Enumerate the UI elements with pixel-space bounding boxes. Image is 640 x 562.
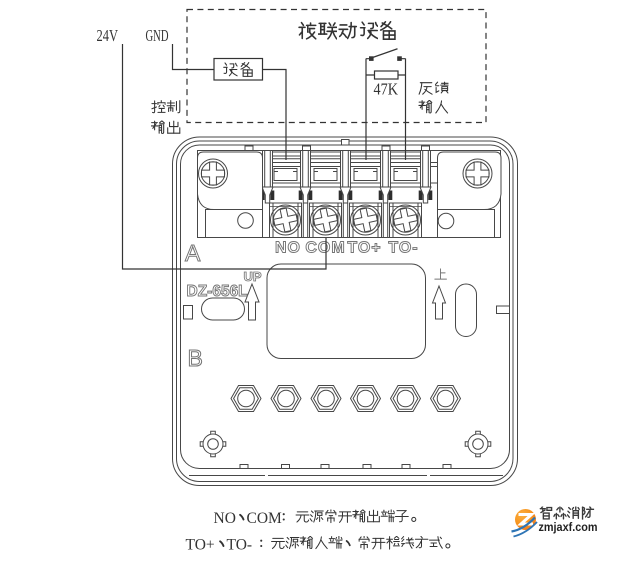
svg-text:B: B <box>188 345 203 371</box>
svg-text:A: A <box>185 240 201 266</box>
svg-text:COM: COM <box>247 510 283 527</box>
svg-text:NO: NO <box>214 510 236 527</box>
svg-text:TO-: TO- <box>227 537 253 554</box>
svg-text:TO+: TO+ <box>347 240 381 257</box>
svg-text:TO-: TO- <box>388 240 418 257</box>
svg-text:TO+: TO+ <box>186 537 215 554</box>
svg-text:24V: 24V <box>97 26 119 45</box>
svg-text:DZ-656L: DZ-656L <box>187 283 248 300</box>
svg-text:47K: 47K <box>374 80 399 99</box>
svg-text:GND: GND <box>146 26 169 45</box>
svg-text:NO: NO <box>275 240 301 257</box>
svg-text:zmjaxf.com: zmjaxf.com <box>539 520 598 534</box>
svg-text:UP: UP <box>244 269 262 284</box>
